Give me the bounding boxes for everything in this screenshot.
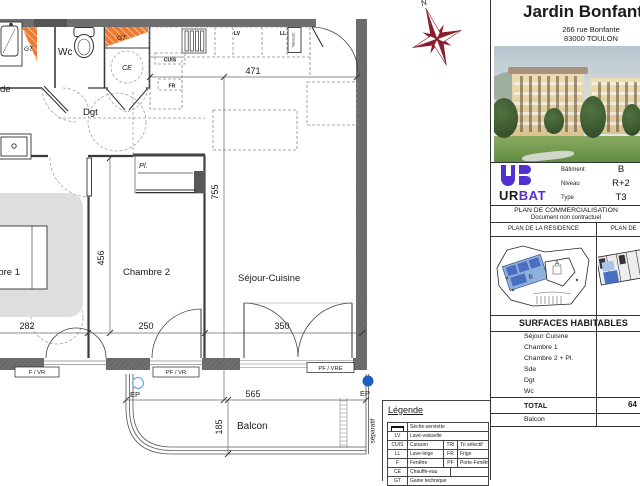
title-block-panel: Jardin Bonfante 266 rue Bonfante 83000 T… [490, 0, 640, 480]
residence-site-plan: B A. [493, 238, 594, 314]
legend-row: CE Chauffe-eau [388, 468, 488, 477]
type-value: T3 [609, 192, 633, 203]
building-main-roof [508, 67, 588, 74]
chambre1-door [50, 158, 92, 197]
niveau-value: R+2 [609, 178, 633, 189]
panel-column-divider [596, 222, 597, 426]
type-label: Type [561, 195, 574, 201]
tree [622, 104, 640, 136]
balcony [126, 374, 369, 454]
ce-label: CE [122, 65, 132, 72]
ll-label: LL [280, 31, 287, 37]
urbat-logo-icon-b1 [519, 165, 531, 174]
surface-row: Chambre 2 + Pl. [524, 355, 573, 362]
dim-250: 250 [138, 321, 153, 331]
window-arcs [46, 303, 352, 358]
dgt-label: Dgt [83, 107, 98, 118]
surfaces-header: SURFACES HABITABLES [519, 318, 628, 328]
toilet [74, 28, 94, 58]
dim-456: 456 [96, 250, 106, 265]
urbat-logo-icon-slot [506, 165, 511, 176]
project-title: Jardin Bonfante [523, 2, 640, 22]
ep-left-marker [133, 378, 144, 389]
niveau-label: Niveau [561, 181, 580, 187]
cuis-label: CUIS [164, 58, 177, 64]
etage-floor-plan [598, 240, 640, 312]
window-pf-vr-label: PF / VR [166, 370, 186, 376]
legend-table: Sèche-serviette LV Lave-vaisselle CUIS C… [387, 422, 489, 486]
pl-label: Pl. [139, 161, 148, 170]
wc-label: Wc [58, 47, 72, 58]
window-pf-vre-label: PF / VRE [318, 366, 342, 372]
fr-label: FR [169, 84, 176, 90]
legend-row: LV Lave-vaisselle [388, 432, 488, 441]
batiment-value: B [609, 164, 633, 175]
gt-top-label: GT [117, 35, 127, 42]
sejour-label: Séjour-Cuisine [238, 273, 300, 284]
dim-565: 565 [245, 389, 260, 399]
chambre2-label: Chambre 2 [123, 267, 170, 278]
ep-right-marker [363, 376, 374, 387]
doc-type: PLAN DE COMMERCIALISATION [491, 207, 640, 214]
ep-right-label: EP [360, 389, 370, 398]
legend-title: Légende [388, 405, 423, 415]
surface-row: Séjour Cuisine [524, 333, 568, 340]
towel-dryer-icon [391, 426, 404, 431]
legend-row: CUIS Cuisson TRI Tri sélectif [388, 441, 488, 450]
urbat-logo-icon-b2 [519, 176, 531, 185]
sde-door [42, 86, 76, 122]
ep-left-label: EP [130, 390, 140, 399]
tab-elec-label: TAB.ELEC [292, 32, 296, 48]
surface-row: Sde [524, 366, 536, 373]
legend-box: Légende Sèche-serviette LV Lave-vaissell… [382, 400, 491, 481]
dim-755: 755 [210, 184, 220, 199]
building-photo [494, 46, 640, 162]
compass-n-label: N [420, 0, 429, 8]
total-label: TOTAL [524, 401, 547, 410]
dim-350: 350 [274, 321, 289, 331]
dim-282: 282 [19, 321, 34, 331]
sde-label: de [0, 84, 11, 95]
balcon-label: Balcon [237, 421, 268, 432]
address-line2: 83000 TOULON [536, 34, 640, 43]
dim-471: 471 [245, 66, 260, 76]
surface-row: Wc [524, 388, 534, 395]
separatif-label: séparatif [370, 418, 377, 443]
legend-row: LL Lave-linge FR Frigo [388, 450, 488, 459]
legend-row: Sèche-serviette [388, 423, 488, 432]
legend-row: GT Gaine technique [388, 477, 488, 485]
tree [580, 96, 606, 138]
project-address: 266 rue Bonfante 83000 TOULON [536, 25, 640, 43]
urbat-logo-text: URBAT [499, 188, 546, 203]
tree [544, 108, 564, 134]
total-value: 64 [628, 400, 637, 409]
bed [0, 193, 83, 317]
surface-row: Dgt [524, 377, 535, 384]
compass-rose: N [398, 0, 471, 74]
lv-label: LV [234, 31, 241, 37]
window-f-vr-label: F / VR [29, 370, 45, 376]
residence-plan-header: PLAN DE LA RESIDENCE [491, 226, 596, 232]
address-line1: 266 rue Bonfante [536, 25, 640, 34]
gt-left-label: GT [24, 46, 34, 53]
chambre1-label: Chambre 1 [0, 267, 20, 278]
dim-185: 185 [214, 419, 224, 434]
surface-row: Chambre 1 [524, 344, 558, 351]
site-building-a-label: A. [555, 260, 561, 267]
batiment-label: Bâtiment [561, 167, 585, 173]
etage-plan-header: PLAN DE [611, 226, 637, 232]
balcon-row-label: Balcon [524, 416, 545, 423]
doc-note: Document non contractuel [491, 215, 640, 221]
kitchen-units [150, 27, 357, 150]
legend-row: F Fenêtre PF Porte-Fenêtre [388, 459, 488, 468]
separatif-hatch [340, 398, 347, 448]
entry-door [312, 27, 358, 73]
ce-doors [106, 88, 148, 112]
lawn [494, 136, 640, 162]
